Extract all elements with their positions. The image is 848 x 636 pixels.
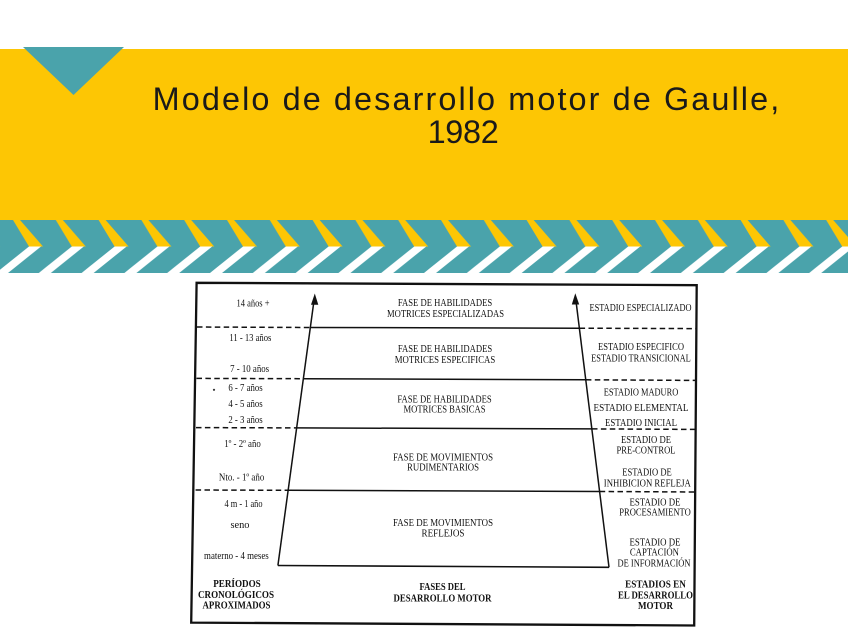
- svg-text:ESTADIO TRANSICIONAL: ESTADIO TRANSICIONAL: [591, 353, 691, 365]
- svg-text:7 - 10 años: 7 - 10 años: [230, 363, 269, 375]
- svg-text:14 años +: 14 años +: [237, 298, 270, 310]
- svg-text:ESTADIO ESPECIFICO: ESTADIO ESPECIFICO: [598, 341, 684, 353]
- svg-text:FASES DEL: FASES DEL: [420, 581, 466, 593]
- svg-text:PRE-CONTROL: PRE-CONTROL: [617, 445, 676, 457]
- svg-text:INHIBICION REFLEJA: INHIBICION REFLEJA: [604, 477, 691, 489]
- svg-text:PROCESAMIENTO: PROCESAMIENTO: [619, 506, 691, 518]
- svg-text:Nto. - 1º año: Nto. - 1º año: [219, 472, 265, 484]
- svg-text:MOTRICES ESPECIFICAS: MOTRICES ESPECIFICAS: [395, 354, 496, 366]
- svg-text:MOTRICES BASICAS: MOTRICES BASICAS: [404, 403, 486, 415]
- svg-text:APROXIMADOS: APROXIMADOS: [203, 600, 271, 612]
- svg-text:ESTADIO INICIAL: ESTADIO INICIAL: [605, 417, 677, 429]
- svg-text:DESARROLLO MOTOR: DESARROLLO MOTOR: [394, 593, 493, 605]
- svg-text:ESTADIO ESPECIALIZADO: ESTADIO ESPECIALIZADO: [590, 302, 692, 314]
- svg-text:MOTRICES ESPECIALIZADAS: MOTRICES ESPECIALIZADAS: [387, 308, 504, 320]
- svg-text:2 - 3 años: 2 - 3 años: [228, 414, 262, 426]
- svg-text:MOTOR: MOTOR: [638, 600, 674, 612]
- svg-text:1º - 2º año: 1º - 2º año: [224, 438, 261, 450]
- svg-text:4 m - 1 año: 4 m - 1 año: [225, 498, 263, 510]
- svg-text:ESTADIO MADURO: ESTADIO MADURO: [604, 387, 679, 399]
- svg-text:11 - 13 años: 11 - 13 años: [229, 332, 271, 344]
- svg-text:RUDIMENTARIOS: RUDIMENTARIOS: [407, 462, 479, 474]
- svg-text:materno - 4 meses: materno - 4 meses: [204, 550, 269, 562]
- svg-text:4 - 5 años: 4 - 5 años: [228, 398, 262, 410]
- svg-text:DE INFORMACIÓN: DE INFORMACIÓN: [618, 557, 691, 569]
- svg-text:REFLEJOS: REFLEJOS: [422, 528, 465, 540]
- svg-text:ESTADIO ELEMENTAL: ESTADIO ELEMENTAL: [594, 402, 689, 414]
- svg-text:6 - 7 años: 6 - 7 años: [228, 382, 262, 394]
- svg-text:seno: seno: [231, 519, 250, 531]
